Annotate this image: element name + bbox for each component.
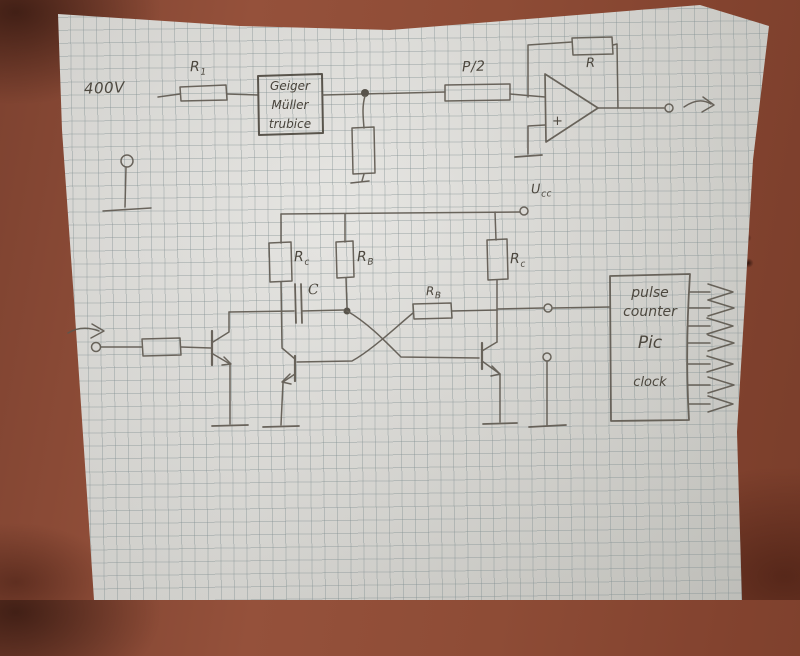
hv-wire xyxy=(158,94,180,97)
shunt-resistor-box xyxy=(352,127,375,174)
wire xyxy=(229,311,294,312)
resistor-rb-left-box xyxy=(336,241,354,278)
capacitor-plate xyxy=(295,284,296,323)
q3-collector xyxy=(482,342,497,351)
resistor-rb-left-label: RB xyxy=(357,250,375,268)
output-arrow xyxy=(684,101,711,107)
wire-drop xyxy=(363,96,365,128)
wire xyxy=(181,347,211,348)
ground-bar xyxy=(263,426,299,427)
output-terminal-top xyxy=(544,304,552,312)
resistor-r1-label: R1 xyxy=(190,60,207,78)
output-wire xyxy=(497,308,543,309)
resistor-rc-left-label: Rc xyxy=(294,250,310,268)
q2-collector xyxy=(282,348,295,359)
ucc-terminal xyxy=(520,207,528,215)
electrode-bar xyxy=(103,208,151,211)
counter-output-lines xyxy=(687,284,734,412)
counter-out-arrow xyxy=(708,335,734,351)
resistor-r1-box xyxy=(180,85,227,101)
resistor-rb-mid-label: RB xyxy=(426,285,442,302)
wire xyxy=(323,92,445,95)
counter-out-arrow xyxy=(708,396,733,412)
ground-bar xyxy=(212,425,248,426)
feedback-resistor-box xyxy=(572,37,613,55)
resistor-p2-box xyxy=(445,84,510,101)
ground-bar xyxy=(483,423,517,424)
input-arrow xyxy=(68,328,99,333)
ucc-label: Ucc xyxy=(531,183,552,200)
geiger-tube-label: Geiger Müller trubice xyxy=(258,77,322,133)
wire xyxy=(452,310,497,311)
electrode-stem xyxy=(125,167,126,207)
feedback-wire xyxy=(613,44,618,108)
opamp-triangle xyxy=(545,74,598,142)
resistor-rb-mid-box xyxy=(413,303,452,319)
capacitor-plate xyxy=(301,284,302,323)
resistor-rc-left-box xyxy=(269,242,292,282)
q3-emitter xyxy=(482,361,500,422)
capacitor-label: C xyxy=(308,283,320,297)
feedback-tap-wire xyxy=(528,42,572,97)
hv-supply-label: 400V xyxy=(84,80,125,96)
resistor-rc-right-label: Rc xyxy=(510,252,526,270)
noninv-input-wire xyxy=(528,125,545,154)
wire xyxy=(302,310,344,311)
output-terminal xyxy=(665,104,673,112)
q2-base-wire xyxy=(297,313,413,362)
wire xyxy=(362,174,364,181)
electrode-terminal xyxy=(121,155,133,167)
output-arrow-head xyxy=(702,97,714,112)
input-terminal xyxy=(92,343,101,352)
q1-collector xyxy=(213,312,229,342)
wire xyxy=(495,212,496,240)
pulse-counter-label: pulse counter Pic clock xyxy=(610,275,690,421)
ground-bar xyxy=(515,155,542,157)
opamp-plus-label: + xyxy=(552,115,563,128)
feedback-resistor-label: R xyxy=(586,57,596,70)
wire xyxy=(281,282,282,347)
wire xyxy=(227,94,258,95)
resistor-p2-label: P/2 xyxy=(462,60,486,75)
counter-out-arrow xyxy=(708,300,734,316)
wire xyxy=(346,278,347,308)
ground-tick xyxy=(351,181,369,183)
wire xyxy=(553,307,610,308)
supply-rail xyxy=(281,212,520,214)
counter-out-arrow xyxy=(707,356,733,372)
counter-out-arrow xyxy=(708,284,733,300)
resistor-rc-right-box xyxy=(487,239,508,280)
output-terminal-bottom xyxy=(543,353,551,361)
q1-emitter-arrow xyxy=(222,357,231,365)
counter-out-arrow xyxy=(707,318,733,334)
counter-out-arrow xyxy=(708,377,734,393)
ground-bar xyxy=(529,425,566,427)
input-resistor-box xyxy=(142,338,181,356)
